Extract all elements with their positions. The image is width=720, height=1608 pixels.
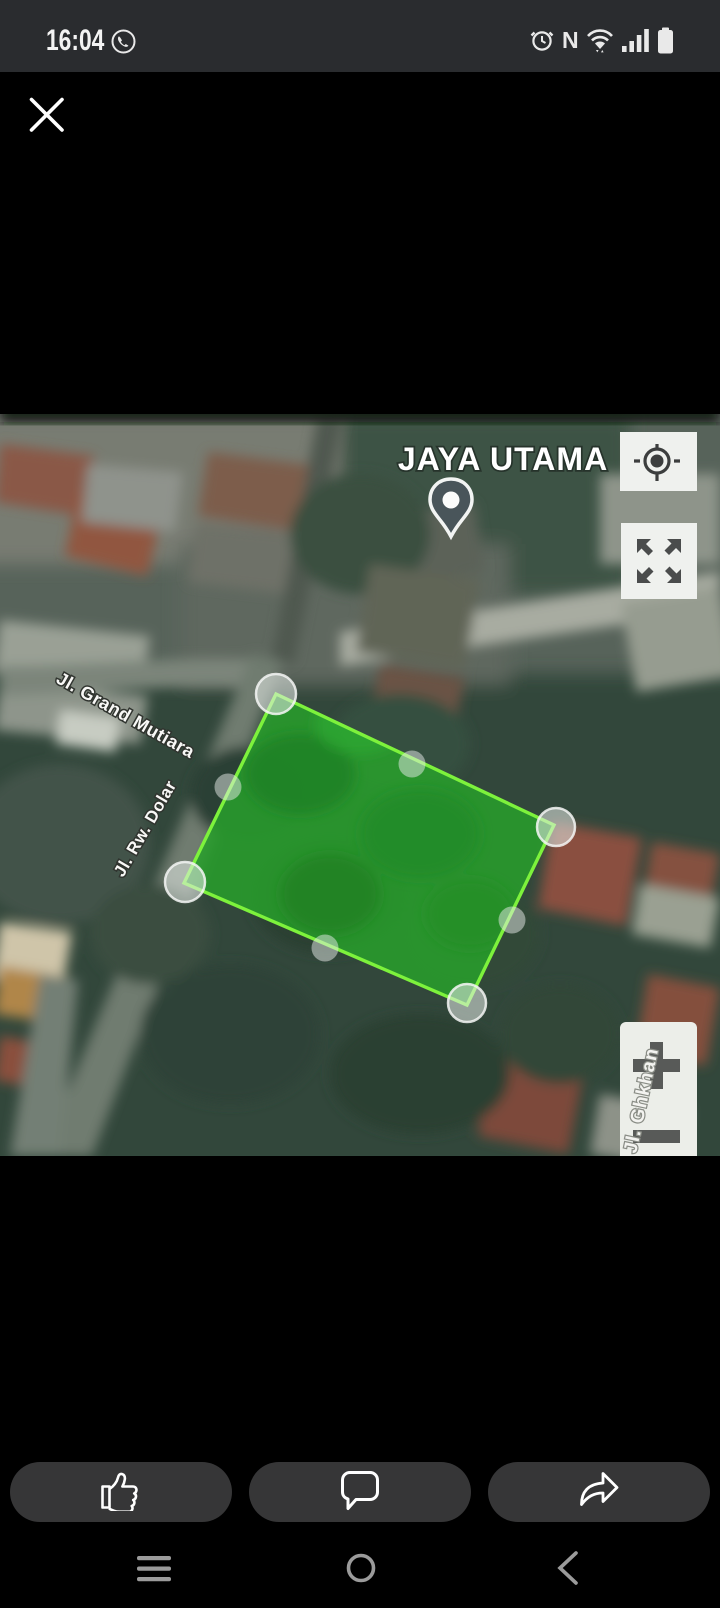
svg-text:JAYA UTAMA: JAYA UTAMA xyxy=(398,441,608,477)
